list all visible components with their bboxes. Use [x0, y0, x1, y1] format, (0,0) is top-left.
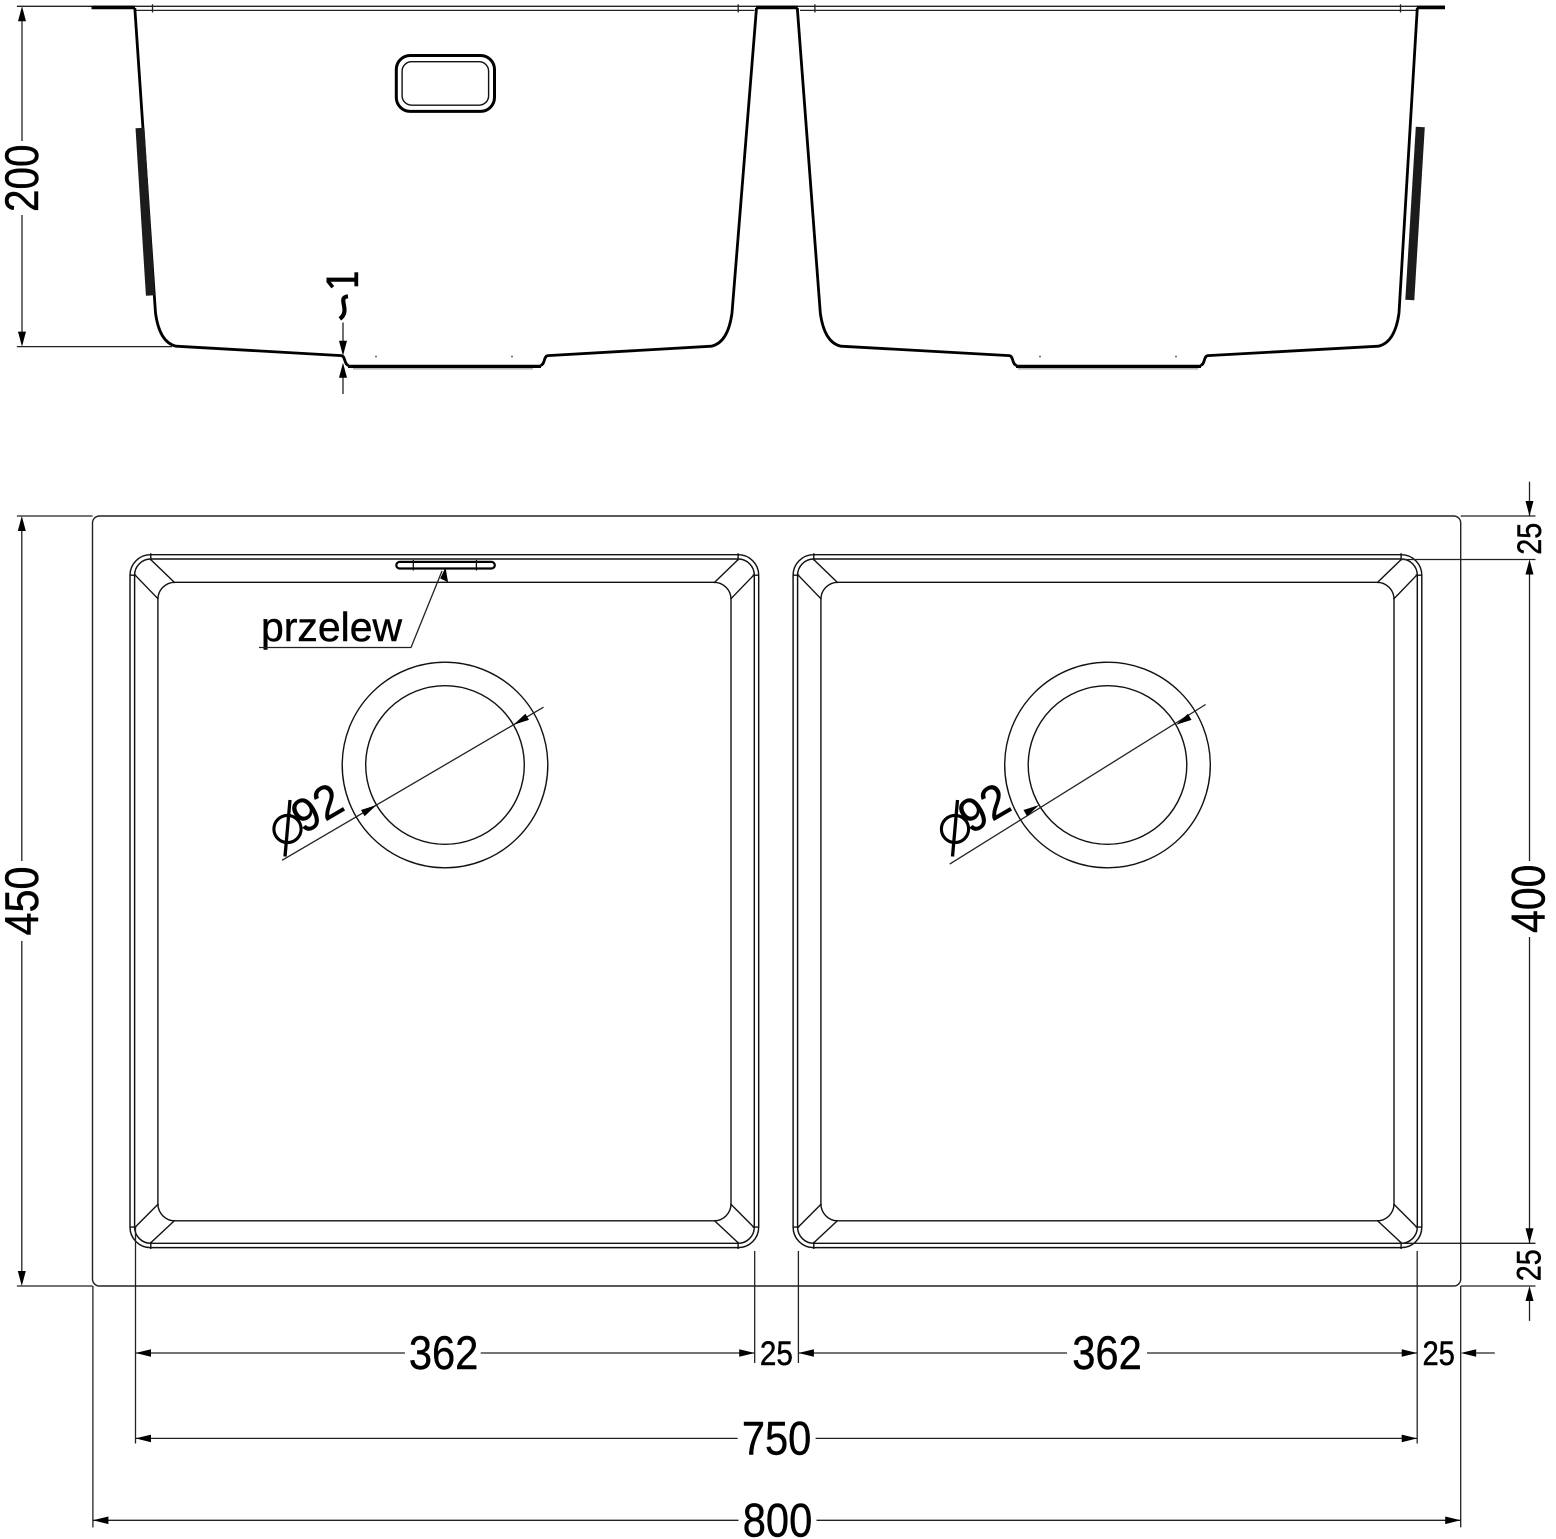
- svg-text:800: 800: [743, 1494, 813, 1539]
- svg-text:450: 450: [0, 867, 48, 936]
- svg-text:25: 25: [760, 1335, 793, 1373]
- svg-text:200: 200: [0, 145, 48, 213]
- svg-text:400: 400: [1502, 865, 1555, 933]
- svg-text:przelew: przelew: [261, 604, 402, 650]
- svg-text:25: 25: [1422, 1335, 1455, 1373]
- svg-text:750: 750: [742, 1412, 812, 1465]
- svg-text:25: 25: [1511, 1249, 1549, 1281]
- svg-text:362: 362: [409, 1326, 479, 1379]
- svg-text:25: 25: [1511, 523, 1549, 555]
- svg-text:362: 362: [1072, 1326, 1142, 1379]
